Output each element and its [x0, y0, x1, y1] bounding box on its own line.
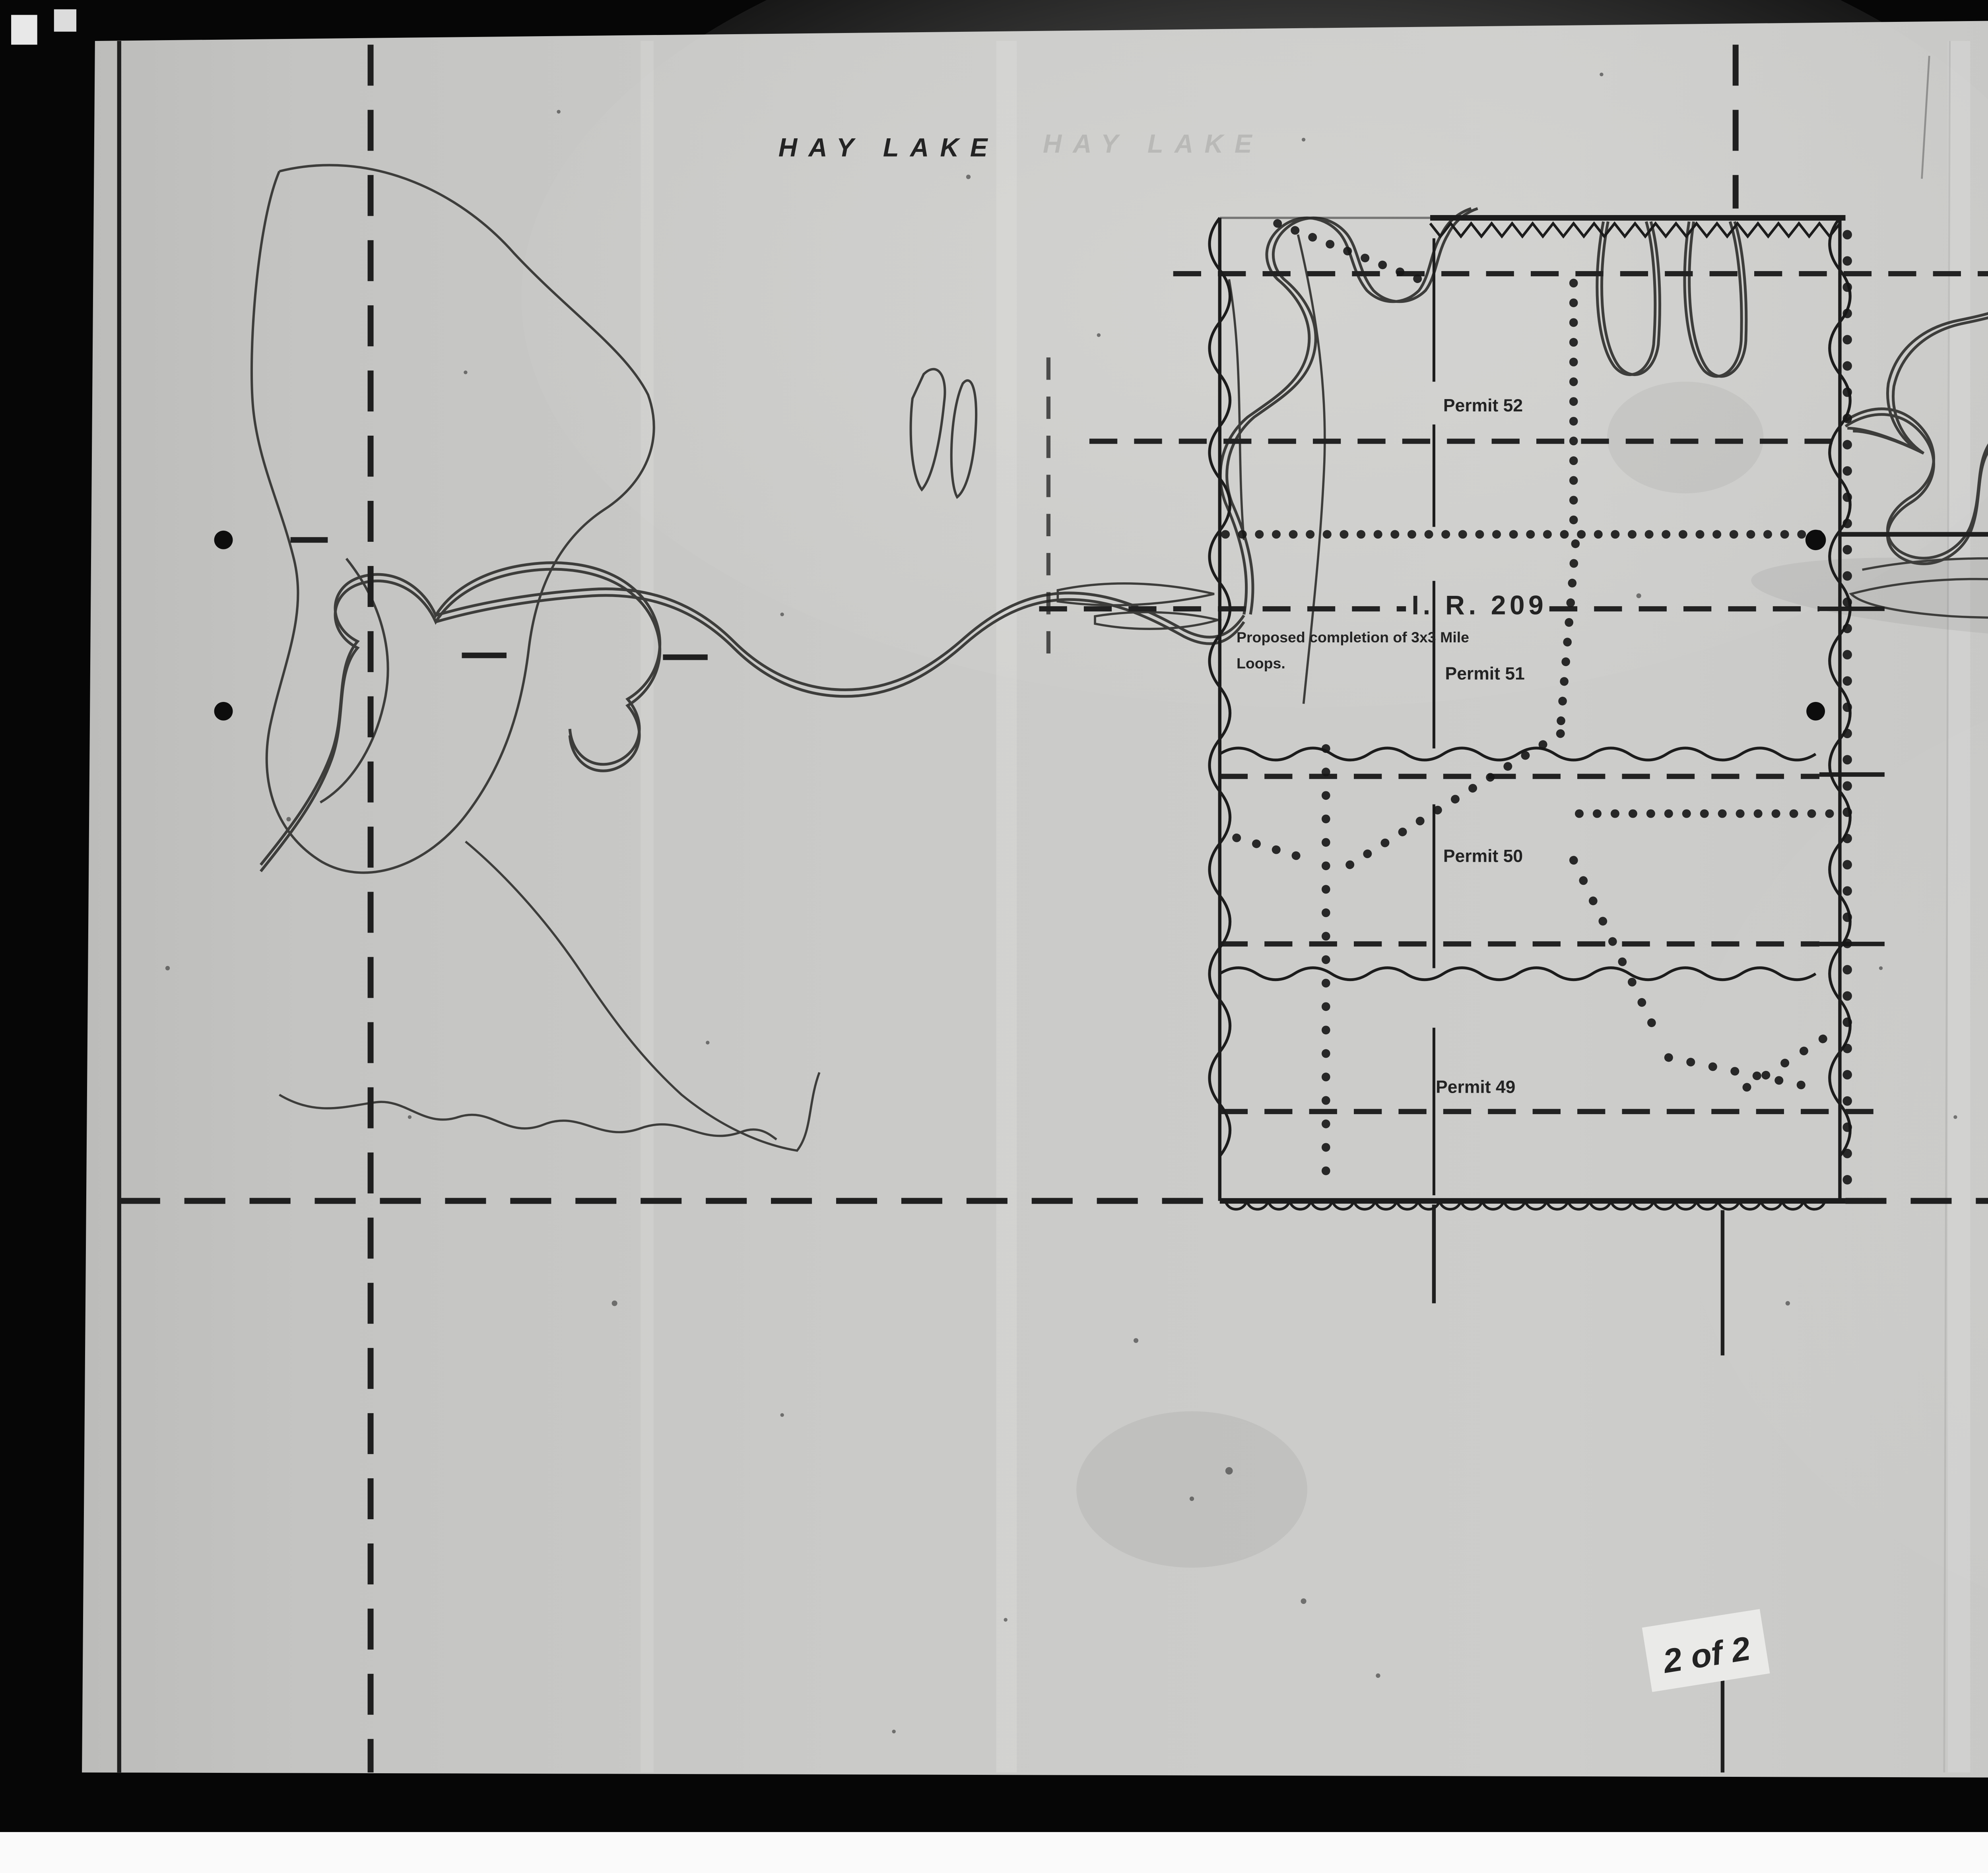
reserve-label: I. R. 209	[1411, 591, 1547, 620]
place-label-ghost: HAY LAKE	[1043, 129, 1263, 158]
place-label: HAY LAKE	[779, 133, 999, 162]
note-line1: Proposed completion of 3x3 Mile	[1237, 629, 1469, 646]
scanner-bed-strip	[0, 1832, 1988, 1873]
permit-51-label: Permit 51	[1445, 664, 1525, 684]
film-mark-icon	[54, 9, 76, 31]
note-line2: Loops.	[1237, 655, 1285, 672]
permit-50-label: Permit 50	[1443, 847, 1523, 866]
map-canvas: HAY LAKE HAY LAKE T.113 T.112 29TH. BASE…	[0, 0, 1988, 1873]
permit-49-label: Permit 49	[1436, 1077, 1515, 1097]
film-mark-icon	[11, 15, 37, 45]
scanned-map-sheet: HAY LAKE HAY LAKE T.113 T.112 29TH. BASE…	[0, 0, 1988, 1873]
permit-52-label: Permit 52	[1443, 396, 1523, 415]
